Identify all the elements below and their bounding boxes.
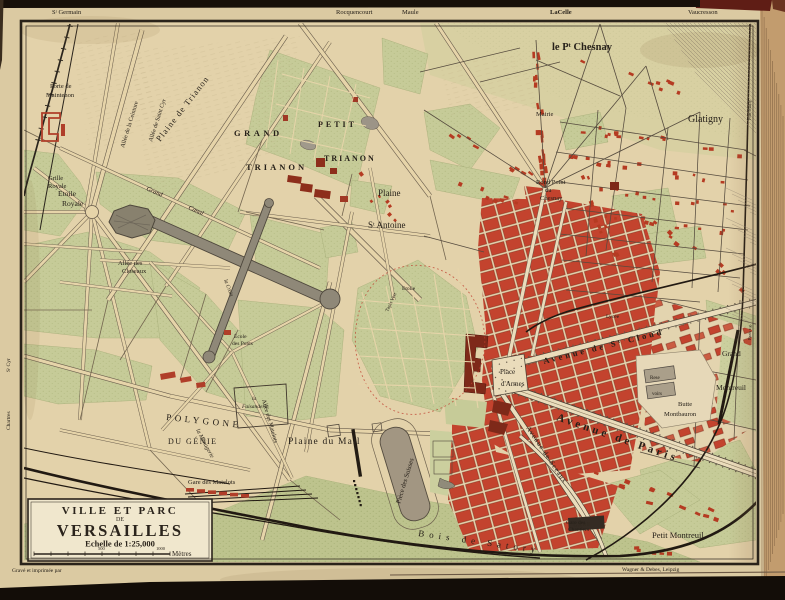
svg-text:DU GÉNIE: DU GÉNIE <box>168 436 218 446</box>
svg-text:Plaine du Mail: Plaine du Mail <box>288 437 361 447</box>
svg-text:Etoile: Etoile <box>58 189 77 198</box>
svg-text:Lycée: Lycée <box>606 314 620 320</box>
svg-text:la: la <box>252 396 257 402</box>
svg-text:LaCelle: LaCelle <box>550 9 572 16</box>
svg-text:TRIANON: TRIANON <box>246 162 307 172</box>
svg-text:Plaine: Plaine <box>378 188 401 198</box>
svg-text:voirs: voirs <box>652 392 662 397</box>
svg-text:Vaucresson: Vaucresson <box>688 9 718 16</box>
svg-text:Paris r.g.: Paris r.g. <box>747 324 752 340</box>
svg-text:Gravé et imprimée par: Gravé et imprimée par <box>12 568 62 574</box>
svg-text:Allée des: Allée des <box>118 260 143 267</box>
svg-text:Gare des Matelots: Gare des Matelots <box>188 479 236 486</box>
svg-text:GRAND: GRAND <box>234 128 283 138</box>
svg-text:VILLE ET PARC: VILLE ET PARC <box>62 505 178 517</box>
svg-text:Montreuil: Montreuil <box>716 383 746 392</box>
svg-text:Sᵗ Antoine: Sᵗ Antoine <box>368 220 405 230</box>
svg-text:Glatigny: Glatigny <box>688 114 723 125</box>
svg-text:École: École <box>234 332 247 340</box>
svg-text:Maule: Maule <box>402 9 419 16</box>
svg-text:Montbauron: Montbauron <box>664 411 697 418</box>
svg-text:Chartres: Chartres <box>6 411 12 430</box>
svg-text:Rese: Rese <box>650 376 661 381</box>
svg-text:Sᵗ Germain: Sᵗ Germain <box>52 9 82 16</box>
svg-text:PETIT: PETIT <box>318 120 357 129</box>
svg-text:1000: 1000 <box>156 546 166 551</box>
svg-text:Grand: Grand <box>722 349 741 358</box>
svg-text:du: du <box>545 187 552 194</box>
svg-text:Rocquencourt: Rocquencourt <box>336 9 373 16</box>
svg-text:Etoile: Etoile <box>402 286 416 292</box>
svg-text:Petit Montreuil: Petit Montreuil <box>652 530 704 540</box>
svg-text:Rond Point: Rond Point <box>536 179 566 186</box>
svg-text:Port-Marly: Port-Marly <box>747 99 752 120</box>
svg-text:500: 500 <box>98 546 106 551</box>
svg-text:Chesnay: Chesnay <box>540 195 563 202</box>
svg-text:Sᵗ Cyr: Sᵗ Cyr <box>6 358 12 372</box>
svg-text:Gare des: Gare des <box>566 520 585 526</box>
svg-text:Butte: Butte <box>678 401 692 408</box>
svg-text:VERSAILLES: VERSAILLES <box>57 521 184 540</box>
svg-text:d'Armes: d'Armes <box>501 380 525 388</box>
svg-text:TRIANON: TRIANON <box>324 154 376 163</box>
svg-text:des Ponts: des Ponts <box>232 341 253 347</box>
svg-text:Wagner & Debes, Leipzig: Wagner & Debes, Leipzig <box>622 567 680 573</box>
svg-text:Chantiers: Chantiers <box>568 527 589 533</box>
svg-text:Echelle de 1:25,000: Echelle de 1:25,000 <box>85 539 155 549</box>
svg-text:Mairie: Mairie <box>536 111 553 118</box>
svg-text:le Pᵗ Chesnay: le Pᵗ Chesnay <box>552 42 613 53</box>
svg-text:Place: Place <box>500 368 515 376</box>
svg-text:Maintenon: Maintenon <box>46 92 75 99</box>
svg-text:Porte de: Porte de <box>50 83 72 90</box>
svg-text:Royale: Royale <box>62 199 84 208</box>
svg-text:Mètres: Mètres <box>172 550 192 558</box>
svg-text:Closeaux: Closeaux <box>122 268 147 275</box>
svg-text:Grille: Grille <box>48 175 63 182</box>
